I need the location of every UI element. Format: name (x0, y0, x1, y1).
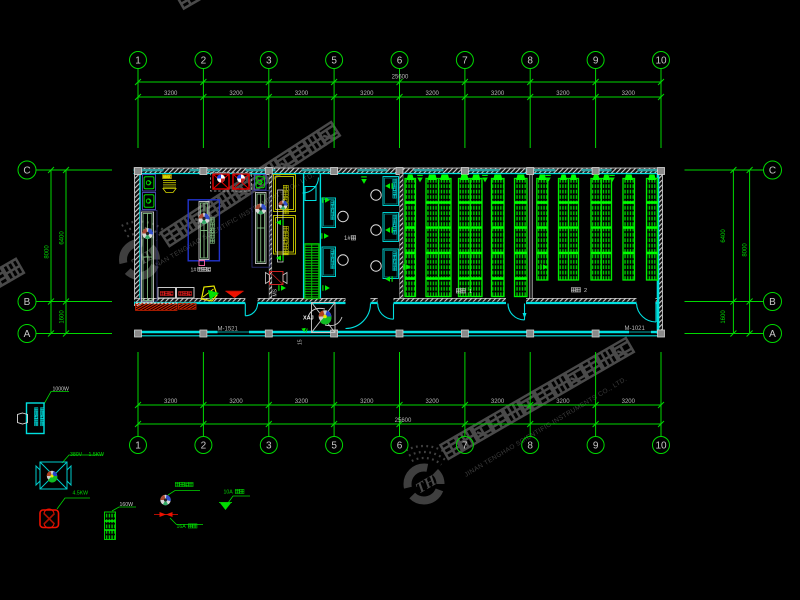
svg-text:B: B (769, 297, 776, 308)
svg-text:3200: 3200 (491, 91, 505, 97)
svg-text:B: B (24, 297, 31, 308)
svg-text:MS: MS (273, 288, 279, 296)
svg-text:15: 15 (298, 339, 304, 345)
svg-text:3200: 3200 (164, 399, 178, 405)
svg-text:XAJ: XAJ (303, 316, 314, 322)
svg-text:2: 2 (584, 288, 587, 294)
svg-text:3200: 3200 (622, 91, 636, 97)
svg-text:3200: 3200 (556, 91, 570, 97)
svg-text:1#: 1# (191, 267, 197, 273)
svg-text:10A: 10A (224, 490, 234, 496)
svg-text:MAX: MAX (163, 175, 171, 179)
svg-text:8000: 8000 (743, 243, 749, 257)
svg-text:9: 9 (593, 441, 599, 452)
svg-text:A: A (24, 329, 31, 340)
svg-text:3200: 3200 (426, 91, 440, 97)
svg-text:3200: 3200 (491, 399, 505, 405)
svg-text:3: 3 (266, 56, 272, 67)
svg-text:25600: 25600 (392, 75, 409, 81)
svg-text:2: 2 (201, 441, 207, 452)
svg-text:6: 6 (397, 56, 403, 67)
svg-text:6400: 6400 (721, 229, 727, 243)
svg-text:6: 6 (397, 441, 403, 452)
svg-text:10: 10 (655, 441, 667, 452)
svg-text:1600: 1600 (721, 310, 727, 324)
svg-text:25600: 25600 (395, 418, 412, 424)
svg-text:3200: 3200 (360, 399, 374, 405)
svg-text:M-1521: M-1521 (218, 327, 239, 333)
svg-text:1: 1 (469, 289, 472, 295)
svg-text:7: 7 (462, 56, 468, 67)
svg-text:1: 1 (135, 441, 141, 452)
svg-text:1: 1 (135, 56, 141, 67)
svg-text:8000: 8000 (45, 245, 51, 259)
svg-text:9: 9 (593, 56, 599, 67)
svg-text:8: 8 (527, 441, 533, 452)
svg-text:3200: 3200 (426, 399, 440, 405)
svg-text:A: A (769, 329, 776, 340)
svg-text:3200: 3200 (295, 399, 309, 405)
svg-text:2: 2 (201, 56, 207, 67)
svg-text:1#: 1# (344, 236, 351, 242)
svg-text:1600: 1600 (60, 310, 66, 324)
svg-text:C: C (23, 166, 30, 177)
svg-text:3200: 3200 (164, 91, 178, 97)
svg-text:6400: 6400 (60, 231, 66, 245)
svg-text:3200: 3200 (229, 399, 243, 405)
svg-text:10: 10 (655, 56, 667, 67)
svg-text:8: 8 (527, 56, 533, 67)
svg-text:5: 5 (331, 56, 337, 67)
svg-text:7: 7 (462, 441, 468, 452)
svg-text:3200: 3200 (622, 399, 636, 405)
svg-text:M-1021: M-1021 (625, 326, 646, 332)
svg-text:3200: 3200 (360, 91, 374, 97)
svg-text:C: C (769, 166, 776, 177)
svg-text:5: 5 (331, 441, 337, 452)
svg-text:3: 3 (266, 441, 272, 452)
svg-text:3200: 3200 (295, 91, 309, 97)
svg-text:4.5KW: 4.5KW (73, 491, 89, 497)
svg-text:3200: 3200 (229, 91, 243, 97)
svg-text:3200: 3200 (556, 399, 570, 405)
